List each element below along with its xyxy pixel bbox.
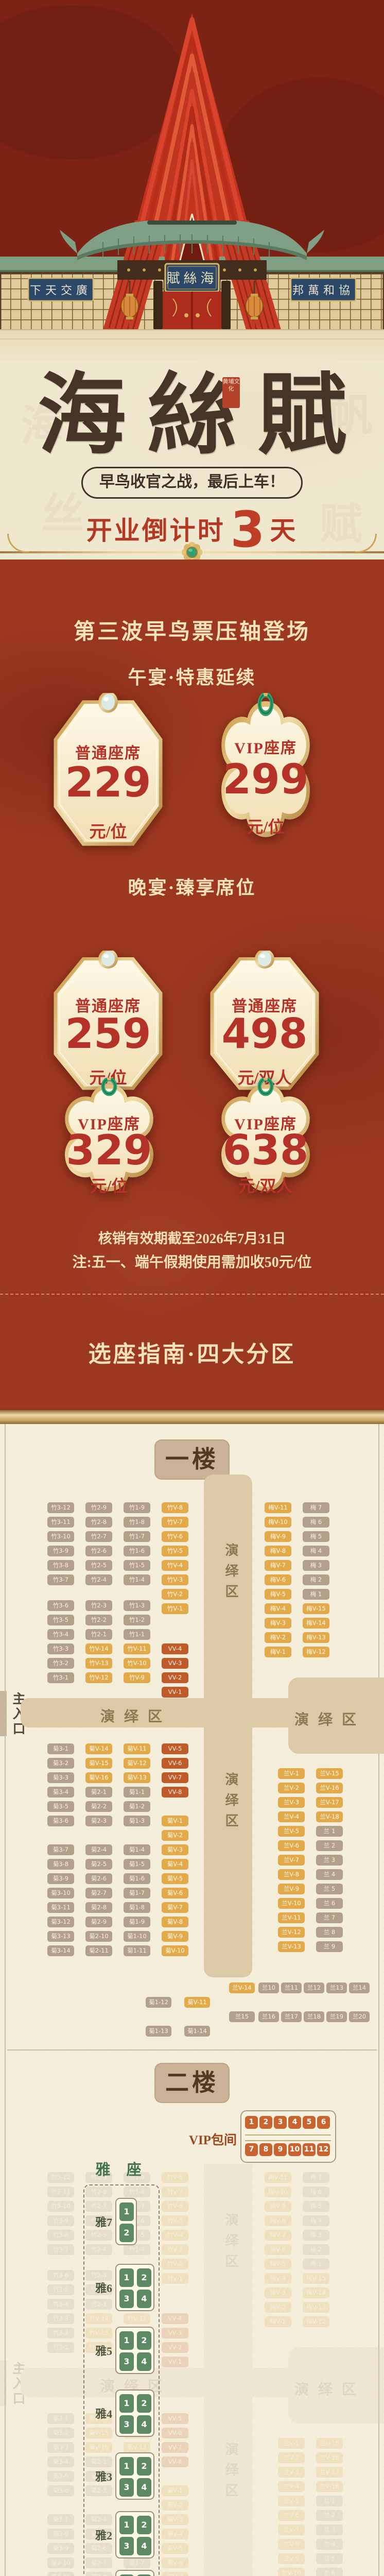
seat-竹2-5: 竹2-5 [85,1560,112,1571]
seat-菊V-11: 菊V-11 [184,1997,210,2008]
ya-zone-label: 雅 座 [83,2158,160,2179]
seat-兰 1: 兰 1 [316,1826,343,1837]
seat-菊V-9: 菊V-9 [162,1931,188,1942]
seat-兰V-14: 兰V-14 [229,1982,255,1993]
ya-seat-雅5-2: 2 [137,2331,151,2350]
seat-竹3-3: 竹3-3 [47,1643,74,1654]
seat-菊2-7: 菊2-7 [85,1888,112,1899]
seat-VV-8: VV-8 [162,1787,188,1798]
seat-菊V-2: 菊V-2 [162,1830,188,1841]
seat-竹2-4: 竹2-4 [85,1574,112,1585]
ya-seat-雅2-4: 4 [137,2537,151,2555]
lunch-title: 午宴·特惠延续 [0,663,384,689]
seat-菊2-4: 菊2-4 [85,1844,112,1855]
seat-菊3-12: 菊3-12 [47,1917,74,1927]
seat-菊1-3: 菊1-3 [124,1816,150,1826]
price-unit: 元/位 [51,819,165,842]
price-unit: 元/位 [50,1173,168,1197]
seat-竹2-1: 竹2-1 [85,1629,112,1640]
seat-竹V-9: 竹V-9 [124,1672,150,1683]
price-card-VIP座席-638: VIP座席638元/双人 [207,1078,324,1201]
holiday-note: 注:五一、端午假期使用需加收50元/位 [0,1251,384,1272]
ya-seat-雅7-2: 2 [119,2224,134,2242]
price-card-VIP座席-329: VIP座席329元/位 [50,1078,168,1201]
seat-菊V-5: 菊V-5 [162,1873,188,1884]
ya-group-雅3: 1234 [115,2452,154,2500]
seat-菊3-4: 菊3-4 [47,1787,74,1798]
seat-竹V-10: 竹V-10 [124,1658,150,1669]
seat-竹V-3: 竹V-3 [162,1574,188,1585]
seat-梅V-3: 梅V-3 [265,1618,291,1629]
seat-VV-7: VV-7 [162,1772,188,1783]
seat-梅 7: 梅 7 [303,1502,329,1513]
seat-兰V-6: 兰V-6 [278,1840,305,1851]
vip-room-table-line [245,2134,331,2136]
seat-竹3-7: 竹3-7 [47,1574,74,1585]
seat-梅V-13: 梅V-13 [303,1632,329,1643]
stage-label: 演绎区 [294,1708,365,1729]
ya-seat-雅3-3: 3 [119,2478,134,2497]
seat-竹V-2: 竹V-2 [162,1589,188,1600]
countdown-suffix: 天 [270,516,298,545]
seat-菊3-14: 菊3-14 [47,1945,74,1956]
seat-菊V-12: 菊V-12 [124,1758,150,1769]
seat-竹V-1: 竹V-1 [162,1603,188,1614]
ya-group-雅6: 1234 [115,2264,154,2311]
seat-菊V-3: 菊V-3 [162,1844,188,1855]
price-unit: 元/位 [207,814,324,838]
seat-兰15: 兰15 [229,2011,255,2022]
seat-竹V-12: 竹V-12 [85,1672,112,1683]
seat-兰16: 兰16 [258,2011,279,2022]
seat-兰V-4: 兰V-4 [278,1811,305,1822]
countdown-prefix: 开业倒计时 [86,516,225,545]
seat-竹1-6: 竹1-6 [124,1546,150,1556]
seat-梅V-14: 梅V-14 [303,1618,329,1629]
seat-竹1-1: 竹1-1 [124,1629,150,1640]
seat-兰V-8: 兰V-8 [278,1869,305,1880]
ya-seat-雅4-4: 4 [137,2415,151,2434]
seat-兰12: 兰12 [304,1982,324,1993]
gate-plaque: 賦絲海 [165,264,219,292]
seat-菊1-4: 菊1-4 [124,1844,150,1855]
seat-兰11: 兰11 [281,1982,302,1993]
seat-竹3-12: 竹3-12 [47,1502,74,1513]
seat-菊1-14: 菊1-14 [184,2026,210,2037]
seat-菊1-5: 菊1-5 [124,1859,150,1870]
ya-seat-雅3-4: 4 [137,2478,151,2497]
seat-竹V-13: 竹V-13 [85,1658,112,1669]
seat-竹1-9: 竹1-9 [124,1502,150,1513]
ya-seat-雅4-3: 3 [119,2415,134,2434]
promo-long-page: 下天交廣 邦萬和協 [0,0,384,2576]
svg-text:邦萬和協: 邦萬和協 [292,284,354,297]
ya-group-label-雅5: 雅5 [86,2342,112,2359]
seat-菊3-3: 菊3-3 [47,1772,74,1783]
seat-竹V-7: 竹V-7 [162,1517,188,1528]
seat-菊2-1: 菊2-1 [85,1787,112,1798]
seat-兰V-10: 兰V-10 [278,1898,305,1909]
seat-菊1-8: 菊1-8 [124,1902,150,1913]
seat-竹V-14: 竹V-14 [85,1643,112,1654]
ya-seat-雅6-1: 1 [119,2268,134,2287]
validity-note: 核销有效期截至2026年7月31日 [0,1227,384,1247]
seat-梅 6: 梅 6 [303,1517,329,1528]
ya-seat-雅5-3: 3 [119,2352,134,2371]
seat-菊V-13: 菊V-13 [124,1772,150,1783]
seat-VV-4: VV-4 [162,1643,188,1654]
seat-菊3-1: 菊3-1 [47,1743,74,1754]
seat-竹V-8: 竹V-8 [162,1502,188,1513]
seat-竹3-10: 竹3-10 [47,1531,74,1542]
price-value: 229 [51,762,165,803]
svg-text:賦絲海: 賦絲海 [166,271,217,286]
ya-group-雅5: 1234 [115,2327,154,2374]
ya-seat-雅7-1: 1 [119,2202,134,2221]
seat-梅V-4: 梅V-4 [265,1603,291,1614]
price-value: 638 [207,1130,324,1171]
ya-group-label-雅4: 雅4 [86,2405,112,2421]
svg-text:下天交廣: 下天交廣 [30,284,92,297]
side-plaque-left: 下天交廣 [28,278,93,301]
seat-VV-3: VV-3 [162,1658,188,1669]
seat-兰V-9: 兰V-9 [278,1884,305,1894]
seat-兰10: 兰10 [258,1982,279,1993]
seat-兰V-12: 兰V-12 [278,1927,305,1938]
seat-菊1-13: 菊1-13 [146,2026,171,2037]
vip-room-seat-11: 11 [303,2143,316,2156]
seat-竹2-2: 竹2-2 [85,1615,112,1625]
seat-梅V-10: 梅V-10 [265,1517,291,1528]
seat-兰19: 兰19 [326,2011,347,2022]
vip-room-seat-7: 7 [245,2143,258,2156]
seat-竹1-2: 竹1-2 [124,1615,150,1625]
seat-梅V-7: 梅V-7 [265,1560,291,1571]
seat-兰 8: 兰 8 [316,1927,343,1938]
price-card-VIP座席-299: VIP座席299元/位 [207,693,324,850]
seat-菊1-9: 菊1-9 [124,1917,150,1927]
ya-seat-雅2-1: 1 [119,2516,134,2534]
seat-兰 3: 兰 3 [316,1855,343,1866]
stage-label: 演绎区 [221,1772,240,1834]
seat-菊2-3: 菊2-3 [85,1816,112,1826]
seat-菊V-4: 菊V-4 [162,1859,188,1870]
gate-floor [0,330,384,361]
ya-group-label-雅2: 雅2 [86,2527,112,2543]
seat-VV-6: VV-6 [162,1758,188,1769]
vip-room-table-line [245,2140,331,2141]
floor-divider [7,2049,377,2050]
vip-room-seat-2: 2 [259,2116,272,2129]
seat-菊2-6: 菊2-6 [85,1873,112,1884]
seat-兰V-1: 兰V-1 [278,1768,305,1779]
seat-菊3-8: 菊3-8 [47,1859,74,1870]
seat-菊1-2: 菊1-2 [124,1801,150,1812]
seat-竹2-6: 竹2-6 [85,1546,112,1556]
seat-竹3-8: 竹3-8 [47,1560,74,1571]
seat-兰V-3: 兰V-3 [278,1797,305,1808]
seat-菊3-11: 菊3-11 [47,1902,74,1913]
seat-菊1-11: 菊1-11 [124,1945,150,1956]
seat-菊1-12: 菊1-12 [146,1997,171,2008]
main-title: 海 絲 賦 [0,372,384,461]
seat-菊V-15: 菊V-15 [85,1758,112,1769]
gate-scene: 下天交廣 邦萬和協 [0,0,384,361]
seat-竹1-5: 竹1-5 [124,1560,150,1571]
seat-VV-5: VV-5 [162,1743,188,1754]
seat-竹V-11: 竹V-11 [124,1643,150,1654]
seat-兰13: 兰13 [326,1982,347,1993]
seat-竹2-8: 竹2-8 [85,1517,112,1528]
vip-room-seat-10: 10 [288,2143,301,2156]
ya-group-雅7: 12 [115,2198,137,2245]
ya-seat-雅6-2: 2 [137,2268,151,2287]
seat-菊1-1: 菊1-1 [124,1787,150,1798]
vip-room-seat-1: 1 [245,2116,258,2129]
seat-菊3-2: 菊3-2 [47,1758,74,1769]
seat-菊3-5: 菊3-5 [47,1801,74,1812]
seat-兰18: 兰18 [304,2011,324,2022]
dashed-divider [0,1294,384,1295]
seat-兰17: 兰17 [281,2011,302,2022]
price-card-普通座席-498: 普通座席498元/双人 [208,951,321,1094]
seat-菊2-10: 菊2-10 [85,1931,112,1942]
seat-竹V-5: 竹V-5 [162,1546,188,1556]
vip-room-label: VIP包间 [181,2130,237,2148]
ya-seat-雅3-2: 2 [137,2457,151,2476]
seat-菊3-13: 菊3-13 [47,1931,74,1942]
seat-兰V-17: 兰V-17 [316,1797,343,1808]
ya-group-label-雅3: 雅3 [86,2468,112,2484]
ya-seat-雅4-1: 1 [119,2394,134,2413]
seat-梅 2: 梅 2 [303,1574,329,1585]
map-border-right [378,1424,379,2576]
price-value: 498 [208,1013,321,1055]
seat-兰 6: 兰 6 [316,1898,343,1909]
seat-梅 1: 梅 1 [303,1589,329,1600]
seat-竹V-6: 竹V-6 [162,1531,188,1542]
side-plaque-right: 邦萬和協 [291,278,356,301]
seat-兰V-13: 兰V-13 [278,1941,305,1952]
seat-兰V-7: 兰V-7 [278,1855,305,1866]
ya-group-雅1: 1234 [115,2570,154,2576]
ya-group-label-雅6: 雅6 [86,2279,112,2296]
seat-VV-2: VV-2 [162,1672,188,1683]
promo-headline: 第三波早鸟票压轴登场 [0,614,384,646]
seat-兰 5: 兰 5 [316,1884,343,1894]
ya-seat-雅5-4: 4 [137,2352,151,2371]
seat-菊2-11: 菊2-11 [85,1945,112,1956]
seat-梅V-1: 梅V-1 [265,1647,291,1657]
seat-菊3-6: 菊3-6 [47,1816,74,1826]
seat-VV-1: VV-1 [162,1687,188,1698]
title-char: 賦 [258,372,346,461]
seat-兰V-11: 兰V-11 [278,1912,305,1923]
seat-菊2-2: 菊2-2 [85,1801,112,1812]
ya-group-label-雅7: 雅7 [86,2213,112,2230]
price-value: 299 [207,759,324,800]
ya-seat-雅6-3: 3 [119,2290,134,2308]
seat-兰20: 兰20 [349,2011,370,2022]
seat-菊2-8: 菊2-8 [85,1902,112,1913]
ya-seat-雅2-3: 3 [119,2537,134,2555]
seat-竹3-9: 竹3-9 [47,1546,74,1556]
seat-梅V-15: 梅V-15 [303,1603,329,1614]
seat-竹3-6: 竹3-6 [47,1600,74,1611]
ya-seat-雅4-2: 2 [137,2394,151,2413]
price-card-普通座席-259: 普通座席259元/位 [51,951,165,1094]
seat-竹3-2: 竹3-2 [47,1658,74,1669]
seat-菊V-10: 菊V-10 [162,1945,188,1956]
seat-兰 4: 兰 4 [316,1869,343,1880]
seat-兰V-18: 兰V-18 [316,1811,343,1822]
stage-label: 演绎区 [100,1705,171,1726]
seat-菊V-1: 菊V-1 [162,1816,188,1826]
main-entrance-tab [0,1691,7,1736]
vip-room-seat-9: 9 [274,2143,287,2156]
seat-菊1-10: 菊1-10 [124,1931,150,1942]
seat-梅V-9: 梅V-9 [265,1531,291,1542]
seat-菊V-8: 菊V-8 [162,1917,188,1927]
ya-group-雅2: 1234 [115,2511,154,2558]
countdown-number: 3 [231,501,265,558]
price-card-普通座席-229: 普通座席229元/位 [51,693,165,850]
title-seal: 黄埔文化 [222,377,240,408]
seat-兰V-5: 兰V-5 [278,1826,305,1837]
seat-菊2-5: 菊2-5 [85,1859,112,1870]
seat-梅V-5: 梅V-5 [265,1589,291,1600]
seat-菊3-10: 菊3-10 [47,1888,74,1899]
vip-room-seat-4: 4 [288,2116,301,2129]
subtitle-capsule: 早鸟收官之战，最后上车！ [81,467,303,499]
seat-菊1-6: 菊1-6 [124,1873,150,1884]
seat-兰 2: 兰 2 [316,1840,343,1851]
price-value: 329 [50,1130,168,1171]
seat-竹2-9: 竹2-9 [85,1502,112,1513]
floor1-badge: 一楼 [154,1439,230,1480]
guide-title: 选座指南·四大分区 [0,1335,384,1368]
seat-菊2-9: 菊2-9 [85,1917,112,1927]
seat-梅 4: 梅 4 [303,1546,329,1556]
seat-竹2-7: 竹2-7 [85,1531,112,1542]
seat-竹1-8: 竹1-8 [124,1517,150,1528]
dinner-title: 晚宴·臻享席位 [0,873,384,900]
seat-梅 3: 梅 3 [303,1560,329,1571]
vip-room-seat-8: 8 [259,2143,272,2156]
vip-room-seat-5: 5 [303,2116,316,2129]
ya-seat-雅3-1: 1 [119,2457,134,2476]
seat-type-label: VIP座席 [207,735,324,758]
hero-gate-illustration: 下天交廣 邦萬和協 [0,0,384,361]
seat-竹3-5: 竹3-5 [47,1615,74,1625]
seat-菊V-16: 菊V-16 [85,1772,112,1783]
seat-竹3-1: 竹3-1 [47,1672,74,1683]
seat-梅V-2: 梅V-2 [265,1632,291,1643]
price-value: 259 [51,1013,165,1055]
seat-竹3-4: 竹3-4 [47,1629,74,1640]
title-char: 海 [38,372,126,461]
seat-菊V-14: 菊V-14 [85,1743,112,1754]
vip-room-seat-12: 12 [317,2143,330,2156]
seat-菊3-7: 菊3-7 [47,1844,74,1855]
seat-菊1-7: 菊1-7 [124,1888,150,1899]
seat-竹1-7: 竹1-7 [124,1531,150,1542]
seat-兰 9: 兰 9 [316,1941,343,1952]
ya-group-雅4: 1234 [115,2389,154,2437]
seat-兰V-2: 兰V-2 [278,1783,305,1793]
seat-梅 5: 梅 5 [303,1531,329,1542]
ya-seat-雅5-1: 1 [119,2331,134,2350]
seat-竹V-4: 竹V-4 [162,1560,188,1571]
seat-竹1-4: 竹1-4 [124,1574,150,1585]
seat-兰V-15: 兰V-15 [316,1768,343,1779]
seat-梅V-6: 梅V-6 [265,1574,291,1585]
vip-room-seat-3: 3 [274,2116,287,2129]
seat-兰V-16: 兰V-16 [316,1783,343,1793]
seat-兰 7: 兰 7 [316,1912,343,1923]
seat-竹3-11: 竹3-11 [47,1517,74,1528]
seat-梅V-11: 梅V-11 [265,1502,291,1513]
scroll-bar-top [0,1410,384,1424]
seat-梅V-8: 梅V-8 [265,1546,291,1556]
seat-竹2-3: 竹2-3 [85,1600,112,1611]
stage-label: 演绎区 [221,1543,240,1605]
map-border-left [5,1424,6,2576]
ya-seat-雅6-4: 4 [137,2290,151,2308]
seat-竹1-3: 竹1-3 [124,1600,150,1611]
seat-菊V-6: 菊V-6 [162,1888,188,1899]
floor2-badge: 二楼 [154,2063,230,2103]
seat-菊3-9: 菊3-9 [47,1873,74,1884]
price-unit: 元/双人 [207,1173,324,1197]
seat-兰14: 兰14 [349,1982,370,1993]
ya-seat-雅2-2: 2 [137,2516,151,2534]
vip-room-seat-6: 6 [317,2116,330,2129]
seat-菊V-7: 菊V-7 [162,1902,188,1913]
seat-菊V-11: 菊V-11 [124,1743,150,1754]
seat-梅V-12: 梅V-12 [303,1647,329,1657]
